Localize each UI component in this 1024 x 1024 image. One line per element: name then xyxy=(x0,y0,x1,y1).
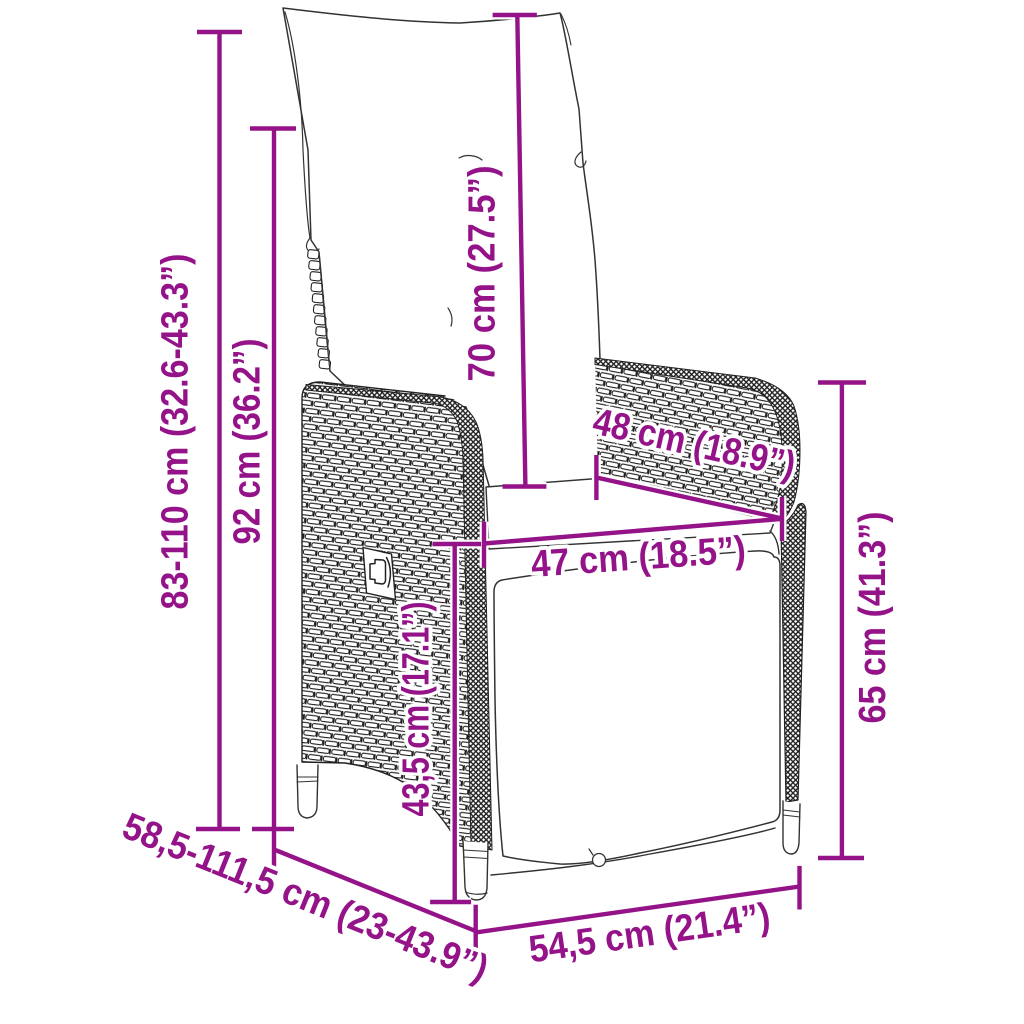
svg-text:70 cm (27.5”): 70 cm (27.5”) xyxy=(462,166,504,382)
svg-text:43,5 cm (17.1”): 43,5 cm (17.1”) xyxy=(396,602,438,817)
svg-text:65 cm (41.3”): 65 cm (41.3”) xyxy=(852,512,894,724)
svg-text:92 cm (36.2”): 92 cm (36.2”) xyxy=(227,339,269,545)
svg-text:83-110 cm (32.6-43.3”): 83-110 cm (32.6-43.3”) xyxy=(155,254,197,610)
